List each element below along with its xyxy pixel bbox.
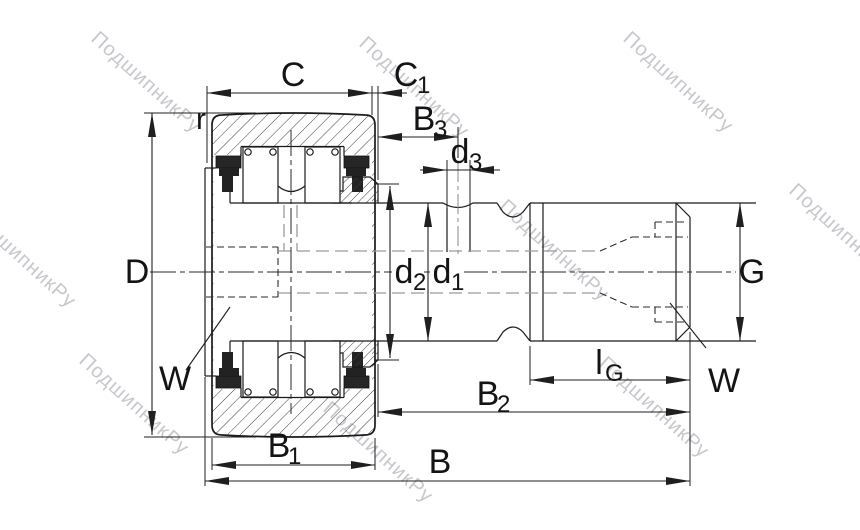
dim-label-d3: d [451,133,470,171]
dim-label-d2-sub: 2 [413,269,426,296]
dim-label-r: r [196,103,206,136]
dim-label-d3-sub: 3 [469,149,482,176]
dim-label-B: B [429,443,452,481]
dim-label-C: C [281,56,306,94]
dim-label-B3-sub: 3 [434,116,447,143]
dim-label-W-left: W [159,360,191,398]
dim-label-d1-sub: 1 [451,269,464,296]
technical-drawing: ПодшипникРу ПодшипникРу ПодшипникРу Подш… [0,0,860,530]
dim-label-B3: B [413,100,436,138]
dim-label-B1-sub: 1 [288,443,301,470]
washer-bottom-left [216,376,241,388]
dim-label-G: G [739,253,765,291]
dim-label-D: D [125,253,150,291]
dim-label-B2-sub: 2 [497,391,510,418]
washer-bottom-right [344,376,369,388]
dim-r: r [196,103,206,136]
dim-label-B2: B [477,375,500,413]
dim-label-C1: C [394,56,419,94]
dim-label-d2: d [395,253,414,291]
dim-label-d1: d [433,253,452,291]
dim-label-lG: l [595,344,603,382]
washer-top-left [216,156,241,168]
dim-label-C1-sub: 1 [417,72,430,99]
dim-label-lG-sub: G [605,360,624,387]
dim-label-W-right: W [708,362,740,400]
dim-label-B1: B [268,427,291,465]
washer-top-right [344,156,369,168]
